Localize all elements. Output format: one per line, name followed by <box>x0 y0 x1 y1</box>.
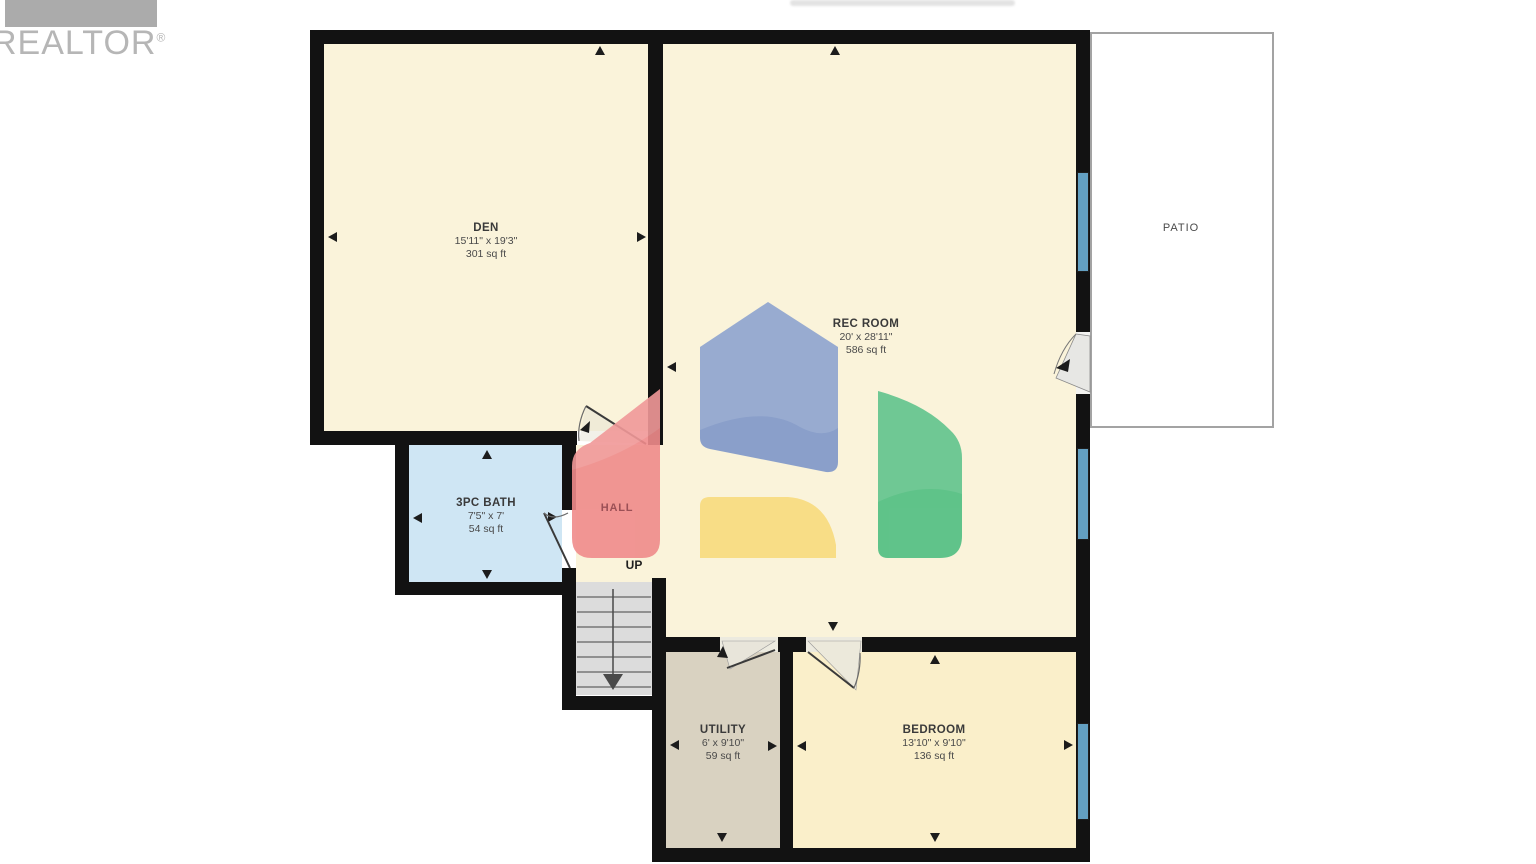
floor-plan-page: REALTOR® PATIO <box>0 0 1536 864</box>
hall-label: HALL <box>601 502 634 514</box>
watermark-yellow-shape <box>700 497 836 558</box>
watermark-logo <box>0 0 1536 864</box>
stairs-up-label: UP <box>626 558 643 572</box>
